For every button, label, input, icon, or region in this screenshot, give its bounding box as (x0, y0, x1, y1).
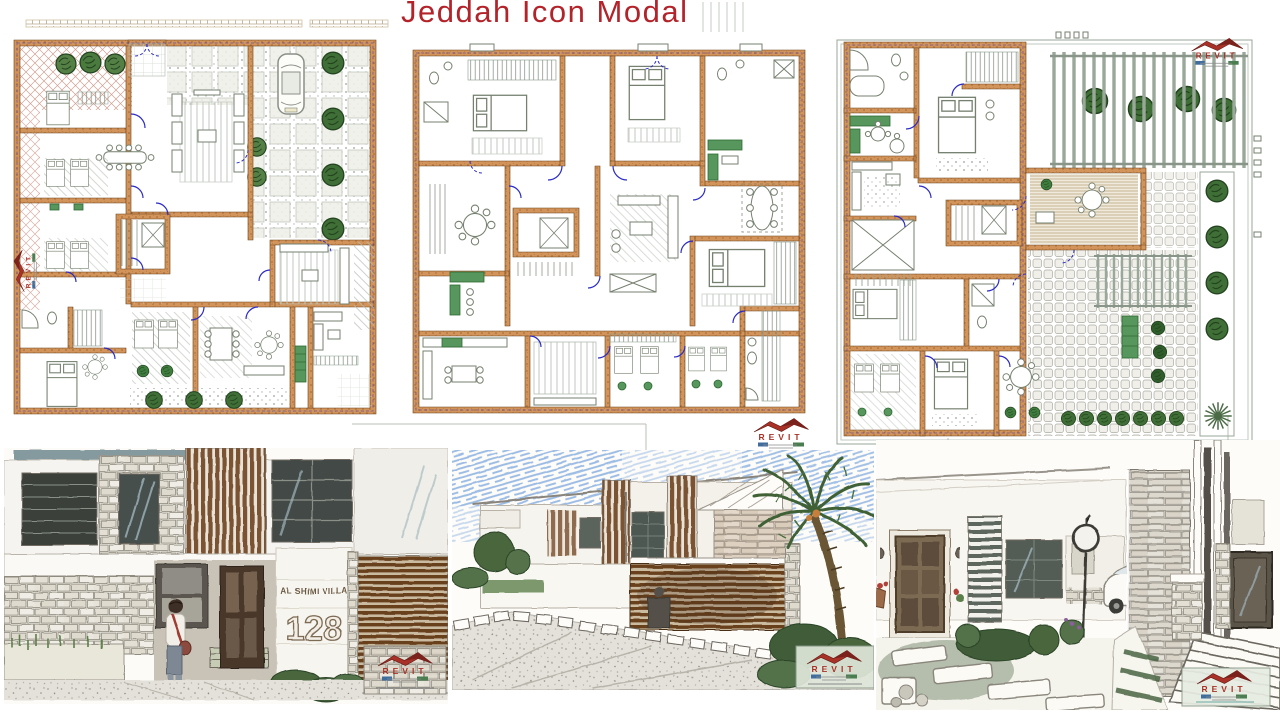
dining-left (430, 184, 495, 315)
garden-strip-bottom (130, 388, 290, 412)
bedrooms-left (44, 91, 108, 272)
villa-sign-wall: AL SHIMI VILLA 128 (276, 548, 352, 680)
bedroom-mid-right (702, 242, 796, 306)
wing-deck-room (1030, 174, 1138, 244)
villa-sign-number: 128 (286, 610, 343, 648)
villa-sign-name: AL SHIMI VILLA (280, 587, 347, 596)
bedroom-bottom-center (132, 312, 190, 384)
stair-core (120, 220, 166, 304)
right-garden-planter (1200, 172, 1234, 436)
render-villa-entrance: AL SHIMI VILLA 128 (4, 448, 448, 704)
floor-plan-right (834, 16, 1264, 448)
kitchen-bottom-left (423, 338, 507, 399)
bedroom-bottom-mid (932, 359, 978, 426)
floor-plan-center (410, 36, 830, 456)
pergola-top (1050, 52, 1248, 168)
car-plan-symbol (278, 54, 304, 114)
bedroom-mid-top (936, 97, 994, 172)
twin-bedroom-1 (610, 334, 676, 390)
bedroom-mid-left (853, 280, 916, 340)
hall-living (610, 194, 678, 292)
stair-core-center (956, 206, 1006, 240)
render-courtyard (876, 440, 1280, 710)
ruler-strip (26, 20, 388, 27)
bath-bottom-right (746, 311, 780, 401)
suite-top-right (708, 60, 794, 232)
bath-top-left (850, 50, 908, 96)
stair-core (518, 218, 572, 276)
revit-logo-center-plan (754, 419, 809, 449)
revit-watermark (364, 646, 446, 694)
render-street-view (452, 450, 874, 690)
bedroom-top-center (628, 66, 680, 142)
revit-watermark (1182, 668, 1270, 706)
bedroom-top-left (424, 60, 556, 154)
twin-bedroom-bottom-left (850, 354, 916, 432)
entrance-canopy (129, 44, 165, 76)
revit-watermark (796, 646, 874, 688)
master-suite-bottom-left (22, 310, 107, 406)
wardrobe-top (966, 52, 1018, 82)
floor-plan-left (8, 18, 393, 438)
kitchen-left (850, 116, 904, 153)
rug-room-bottom (534, 342, 596, 405)
twin-bedroom-2 (689, 347, 727, 388)
living-left (852, 162, 900, 210)
presentation-board: { "page": { "title": "Jeddah Icon Modal"… (0, 0, 1280, 720)
revit-logo-right-plan (1192, 38, 1243, 66)
